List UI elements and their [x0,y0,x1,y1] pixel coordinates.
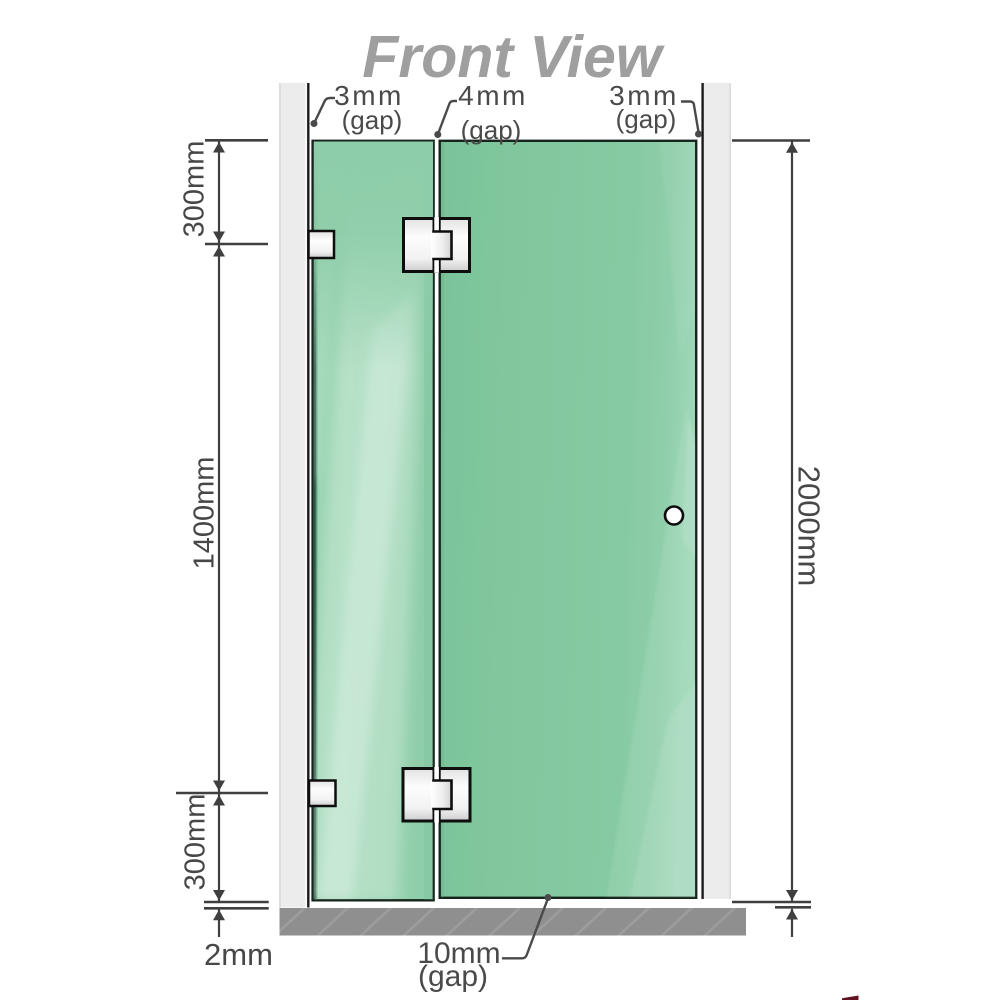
svg-text:(gap): (gap) [616,104,677,134]
svg-text:300mm: 300mm [179,141,211,238]
svg-text:1400mm: 1400mm [189,457,221,570]
svg-text:2mm: 2mm [204,937,273,972]
svg-text:(gap): (gap) [461,115,522,145]
svg-text:300mm: 300mm [180,794,212,891]
svg-text:(gap): (gap) [418,960,488,993]
svg-text:2000mm: 2000mm [792,466,827,587]
svg-text:(gap): (gap) [342,105,403,135]
svg-text:4mm: 4mm [458,80,528,111]
